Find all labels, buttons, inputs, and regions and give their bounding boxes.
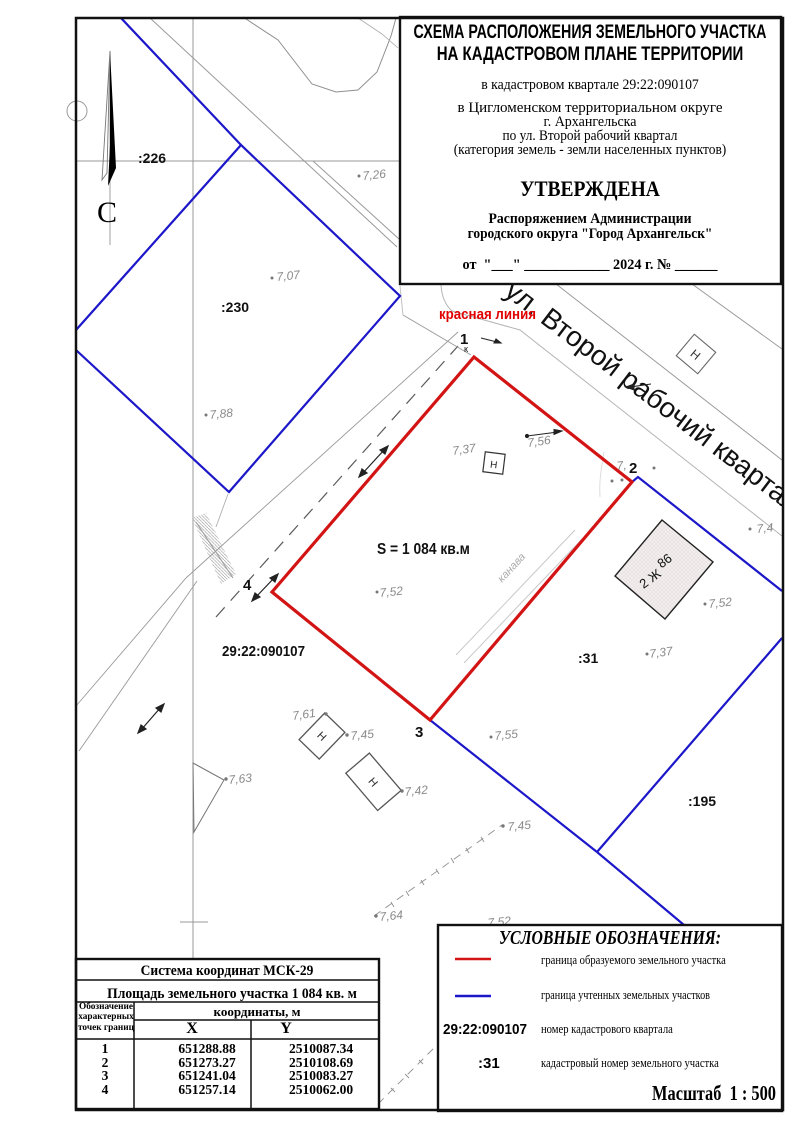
svg-text:Система координат МСК-29: Система координат МСК-29 — [141, 962, 314, 979]
svg-text:1: 1 — [102, 1041, 109, 1056]
svg-text:7,52: 7,52 — [708, 595, 733, 611]
svg-text:красная линия: красная линия — [439, 305, 536, 322]
svg-text:651288.88: 651288.88 — [178, 1041, 236, 1056]
svg-text:точек границ: точек границ — [78, 1023, 135, 1033]
svg-text:к: к — [464, 344, 468, 354]
svg-text::230: :230 — [221, 299, 249, 315]
svg-text:Площадь земельного участка 1 0: Площадь земельного участка 1 084 кв. м — [107, 985, 357, 1002]
svg-text:4: 4 — [102, 1082, 109, 1097]
svg-text:7,55: 7,55 — [494, 727, 519, 743]
svg-text:НА КАДАСТРОВОМ ПЛАНЕ ТЕРРИТОРИ: НА КАДАСТРОВОМ ПЛАНЕ ТЕРРИТОРИИ — [437, 42, 744, 64]
svg-text:2: 2 — [629, 460, 637, 477]
svg-text:граница образуемого земельного: граница образуемого земельного участка — [541, 952, 726, 967]
svg-text:УСЛОВНЫЕ ОБОЗНАЧЕНИЯ:: УСЛОВНЫЕ ОБОЗНАЧЕНИЯ: — [499, 926, 721, 948]
svg-text:3: 3 — [102, 1068, 109, 1083]
svg-text:СХЕМА РАСПОЛОЖЕНИЯ ЗЕМЕЛЬНОГО: СХЕМА РАСПОЛОЖЕНИЯ ЗЕМЕЛЬНОГО УЧАСТКА — [414, 21, 767, 43]
svg-text:4: 4 — [243, 577, 252, 594]
svg-text:7,: 7, — [616, 458, 627, 473]
svg-text::226: :226 — [138, 150, 166, 166]
svg-text:УТВЕРЖДЕНА: УТВЕРЖДЕНА — [520, 176, 660, 201]
svg-text::195: :195 — [688, 793, 716, 809]
svg-text:7,4: 7,4 — [756, 520, 774, 536]
svg-text:граница учтенных земельных уча: граница учтенных земельных участков — [541, 988, 710, 1002]
svg-text:7,07: 7,07 — [276, 267, 302, 284]
svg-text:X: X — [186, 1020, 198, 1037]
svg-text:кадастровый номер земельного у: кадастровый номер земельного участка — [541, 1055, 719, 1070]
svg-text:городского округа "Город Архан: городского округа "Город Архангельск" — [468, 225, 713, 242]
svg-text:7,88: 7,88 — [209, 406, 234, 422]
svg-text:651257.14: 651257.14 — [178, 1082, 236, 1097]
svg-text:С: С — [97, 196, 117, 229]
svg-text:7,63: 7,63 — [228, 771, 253, 787]
svg-text:координаты, м: координаты, м — [214, 1004, 301, 1019]
svg-text:3: 3 — [415, 724, 423, 741]
svg-text:2510087.34: 2510087.34 — [289, 1041, 353, 1056]
svg-text:Масштаб 1 : 500: Масштаб 1 : 500 — [652, 1082, 776, 1105]
svg-text:7,42: 7,42 — [404, 783, 429, 799]
svg-text:29:22:090107: 29:22:090107 — [222, 642, 305, 659]
svg-text:7,45: 7,45 — [507, 818, 532, 834]
svg-text:7,26: 7,26 — [362, 167, 387, 183]
svg-text:Обозначение: Обозначение — [79, 1001, 133, 1012]
svg-text:от "___" ____________ 2024 г.: от "___" ____________ 2024 г. № ______ — [463, 257, 719, 273]
svg-text:651241.04: 651241.04 — [178, 1068, 236, 1083]
svg-text:2510062.00: 2510062.00 — [289, 1082, 353, 1097]
svg-text::31: :31 — [478, 1055, 500, 1072]
svg-text:7,52: 7,52 — [379, 584, 404, 600]
svg-text:2510083.27: 2510083.27 — [289, 1068, 353, 1083]
svg-text:29:22:090107: 29:22:090107 — [443, 1021, 527, 1038]
svg-text::31: :31 — [578, 650, 598, 666]
svg-text:Y: Y — [280, 1020, 292, 1037]
svg-text:Н: Н — [489, 460, 498, 472]
svg-text:номер кадастрового квартала: номер кадастрового квартала — [541, 1021, 673, 1036]
svg-text:характерных: характерных — [78, 1012, 134, 1022]
svg-text:7,64: 7,64 — [379, 908, 404, 924]
svg-text:S = 1 084 кв.м: S = 1 084 кв.м — [377, 540, 470, 558]
svg-text:7,45: 7,45 — [350, 727, 375, 743]
svg-text:(категория земель - земли насе: (категория земель - земли населенных пун… — [454, 141, 727, 158]
svg-text:в кадастровом квартале 29:22:0: в кадастровом квартале 29:22:090107 — [481, 76, 699, 93]
